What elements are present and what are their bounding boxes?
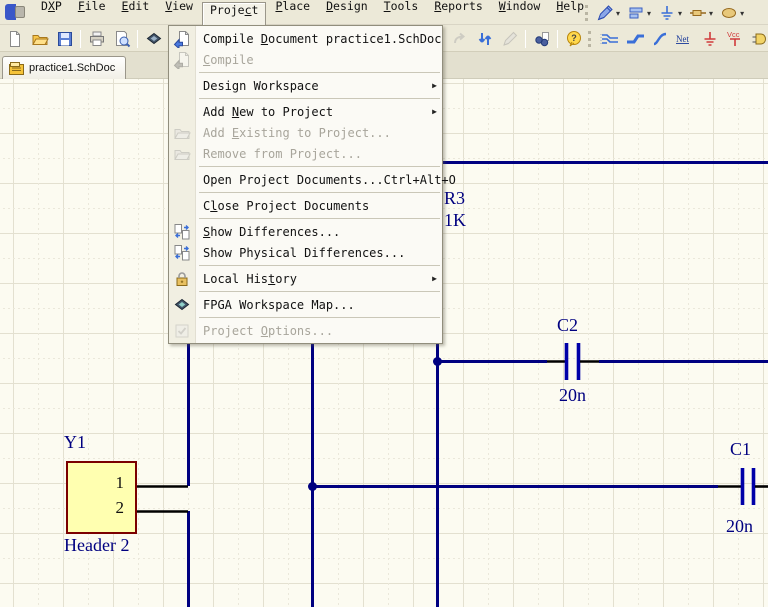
edit-icon	[501, 30, 519, 48]
svg-text:?: ?	[571, 33, 577, 43]
lock-icon	[169, 270, 195, 288]
menu-item-open-project-documents[interactable]: Open Project Documents...Ctrl+Alt+O	[169, 169, 442, 190]
gnd-icon	[701, 30, 719, 48]
menu-tools[interactable]: Tools	[377, 0, 426, 20]
power-port-icon	[658, 4, 676, 22]
menu-reports[interactable]: Reports	[427, 0, 489, 20]
toolbar-separator	[80, 30, 81, 48]
sync-arrows-icon	[476, 30, 494, 48]
junction-dot	[433, 357, 442, 366]
menu-edit[interactable]: Edit	[115, 0, 157, 20]
open-folder-icon	[31, 30, 49, 48]
compile-doc-icon	[173, 30, 191, 48]
signal-icon	[651, 30, 669, 48]
device-view-icon	[145, 30, 163, 48]
menu-item-label: Local History	[203, 272, 297, 286]
toolbar-separator	[137, 30, 138, 48]
print-preview-button[interactable]	[109, 27, 134, 50]
submenu-arrow-icon: ▶	[432, 107, 437, 116]
net-label-icon: Net	[674, 30, 696, 48]
place-wire-button[interactable]	[597, 27, 622, 50]
chevron-down-icon: ▾	[647, 9, 651, 18]
pin-number-1: 1	[100, 473, 124, 493]
redo-icon	[451, 30, 469, 48]
place-signal-harness-button[interactable]	[647, 27, 672, 50]
menu-separator	[199, 218, 440, 219]
print-icon	[88, 30, 106, 48]
folder-doc-icon	[173, 124, 191, 142]
simulation-sources-button[interactable]: ▾	[718, 3, 746, 23]
open-device-view-button[interactable]	[141, 27, 166, 50]
utilities-toolbar: ▾▾▾▾▾	[583, 1, 749, 25]
menu-item-label: Show Differences...	[203, 225, 340, 239]
designator-c1[interactable]: C1	[730, 439, 751, 460]
menu-window[interactable]: Window	[492, 0, 548, 20]
value-r3[interactable]: 1K	[444, 210, 466, 231]
menu-separator	[199, 98, 440, 99]
options-icon	[169, 322, 195, 340]
menu-place[interactable]: Place	[268, 0, 317, 20]
gate-icon	[751, 30, 768, 48]
menu-item-label: Remove from Project...	[203, 147, 362, 161]
place-bus-button[interactable]	[622, 27, 647, 50]
fpga-icon	[169, 296, 195, 314]
menu-separator	[199, 192, 440, 193]
tab-label: practice1.SchDoc	[29, 62, 115, 74]
submenu-arrow-icon: ▶	[432, 274, 437, 283]
app-icon	[5, 4, 25, 20]
help-button[interactable]: ?	[561, 27, 586, 50]
menu-item-label: Add New to Project	[203, 105, 333, 119]
menu-item-local-history[interactable]: Local History▶	[169, 268, 442, 289]
ellipse-icon	[720, 4, 738, 22]
menu-item-remove-from-project: Remove from Project...	[169, 143, 442, 164]
fpga-icon	[173, 296, 191, 314]
menu-item-label: Compile	[203, 53, 254, 67]
menu-item-compile-document[interactable]: Compile Document practice1.SchDoc	[169, 28, 442, 49]
edit-button	[497, 27, 522, 50]
compile-doc-icon	[169, 30, 195, 48]
menu-separator	[199, 317, 440, 318]
menu-project[interactable]: Project	[202, 2, 267, 26]
place-net-label-button[interactable]: Net	[672, 27, 697, 50]
menu-view[interactable]: View	[158, 0, 200, 20]
menu-item-label: Project Options...	[203, 324, 333, 338]
menu-bar-items: DXPFileEditViewProjectPlaceDesignToolsRe…	[33, 0, 592, 26]
toolbar-grip[interactable]	[588, 31, 593, 47]
save-document-button[interactable]	[52, 27, 77, 50]
diff-icon	[169, 223, 195, 241]
diff-icon	[173, 223, 191, 241]
submenu-arrow-icon: ▶	[432, 81, 437, 90]
menu-item-label: Show Physical Differences...	[203, 246, 405, 260]
menu-separator	[199, 72, 440, 73]
toolbar-grip[interactable]	[585, 5, 590, 21]
menu-item-project-options: Project Options...	[169, 320, 442, 341]
component-icon	[689, 4, 707, 22]
menu-item-label: FPGA Workspace Map...	[203, 298, 355, 312]
menu-file[interactable]: File	[71, 0, 113, 20]
find-icon	[533, 30, 551, 48]
menu-item-add-new-to-project[interactable]: Add New to Project▶	[169, 101, 442, 122]
comment-y1[interactable]: Header 2	[64, 535, 129, 556]
pencil-ruler-icon	[596, 4, 614, 22]
application-window: DXPFileEditViewProjectPlaceDesignToolsRe…	[0, 0, 768, 607]
schdoc-icon	[9, 62, 24, 75]
options-icon	[173, 322, 191, 340]
alignment-tools-button[interactable]: ▾	[625, 3, 653, 23]
vcc-icon: Vcc	[725, 30, 745, 48]
drawing-tools-button[interactable]: ▾	[594, 3, 622, 23]
designator-r3[interactable]: R3	[444, 188, 465, 209]
junction-dot	[308, 482, 317, 491]
place-vcc-power-port-button[interactable]: Vcc	[722, 27, 747, 50]
compile-doc-icon	[169, 51, 195, 69]
menu-item-label: Close Project Documents	[203, 199, 369, 213]
folder-doc-icon	[169, 124, 195, 142]
toolbar-group-wiring: ?NetVcc	[447, 26, 768, 51]
tab-practice1-schdoc[interactable]: practice1.SchDoc	[2, 56, 126, 79]
compile-doc-icon	[173, 51, 191, 69]
menu-item-show-differences[interactable]: Show Differences...	[169, 221, 442, 242]
svg-text:Vcc: Vcc	[727, 30, 740, 39]
menu-item-label: Add Existing to Project...	[203, 126, 391, 140]
new-document-button[interactable]	[2, 27, 27, 50]
pin-number-2: 2	[100, 498, 124, 518]
redo-button	[447, 27, 472, 50]
menu-item-add-existing-to-project: Add Existing to Project...	[169, 122, 442, 143]
place-part-button[interactable]	[747, 27, 768, 50]
menu-item-design-workspace[interactable]: Design Workspace▶	[169, 75, 442, 96]
project-menu-popup: Compile Document practice1.SchDocCompile…	[168, 25, 443, 344]
menu-item-label: Design Workspace	[203, 79, 319, 93]
menu-design[interactable]: Design	[319, 0, 375, 20]
chevron-down-icon: ▾	[740, 9, 744, 18]
value-c1[interactable]: 20n	[726, 516, 753, 537]
chevron-down-icon: ▾	[616, 9, 620, 18]
toolbar-separator	[525, 30, 526, 48]
toolbar-separator	[557, 30, 558, 48]
menu-bar: DXPFileEditViewProjectPlaceDesignToolsRe…	[0, 0, 768, 25]
menu-item-label: Open Project Documents...	[203, 173, 384, 187]
place-gnd-power-port-button[interactable]	[697, 27, 722, 50]
print-preview-icon	[113, 30, 131, 48]
lock-icon	[173, 270, 191, 288]
menu-item-show-physical-differences[interactable]: Show Physical Differences...	[169, 242, 442, 263]
svg-text:Net: Net	[676, 34, 689, 44]
align-icon	[627, 4, 645, 22]
chevron-down-icon: ▾	[678, 9, 682, 18]
diff-icon	[173, 244, 191, 262]
menu-separator	[199, 265, 440, 266]
diff-icon	[169, 244, 195, 262]
menu-item-close-project-documents[interactable]: Close Project Documents	[169, 195, 442, 216]
find-similar-button[interactable]	[529, 27, 554, 50]
folder-doc-icon	[173, 145, 191, 163]
cross-probe-button[interactable]	[472, 27, 497, 50]
chevron-down-icon: ▾	[709, 9, 713, 18]
folder-doc-icon	[169, 145, 195, 163]
menu-dxp[interactable]: DXP	[34, 0, 69, 20]
new-doc-icon	[6, 30, 24, 48]
digital-devices-button[interactable]: ▾	[687, 3, 715, 23]
menu-separator	[199, 166, 440, 167]
menu-item-fpga-workspace-map[interactable]: FPGA Workspace Map...	[169, 294, 442, 315]
menu-item-label: Compile Document practice1.SchDoc	[203, 32, 441, 46]
value-c2[interactable]: 20n	[559, 385, 586, 406]
print-button[interactable]	[84, 27, 109, 50]
help-icon: ?	[565, 30, 583, 48]
designator-y1[interactable]: Y1	[64, 432, 86, 453]
open-document-button[interactable]	[27, 27, 52, 50]
bus-icon	[625, 30, 645, 48]
wire-icon	[600, 30, 620, 48]
menu-separator	[199, 291, 440, 292]
menu-item-compile: Compile	[169, 49, 442, 70]
designator-c2[interactable]: C2	[557, 315, 578, 336]
menu-item-shortcut: Ctrl+Alt+O	[384, 173, 470, 187]
power-sources-button[interactable]: ▾	[656, 3, 684, 23]
save-icon	[56, 30, 74, 48]
